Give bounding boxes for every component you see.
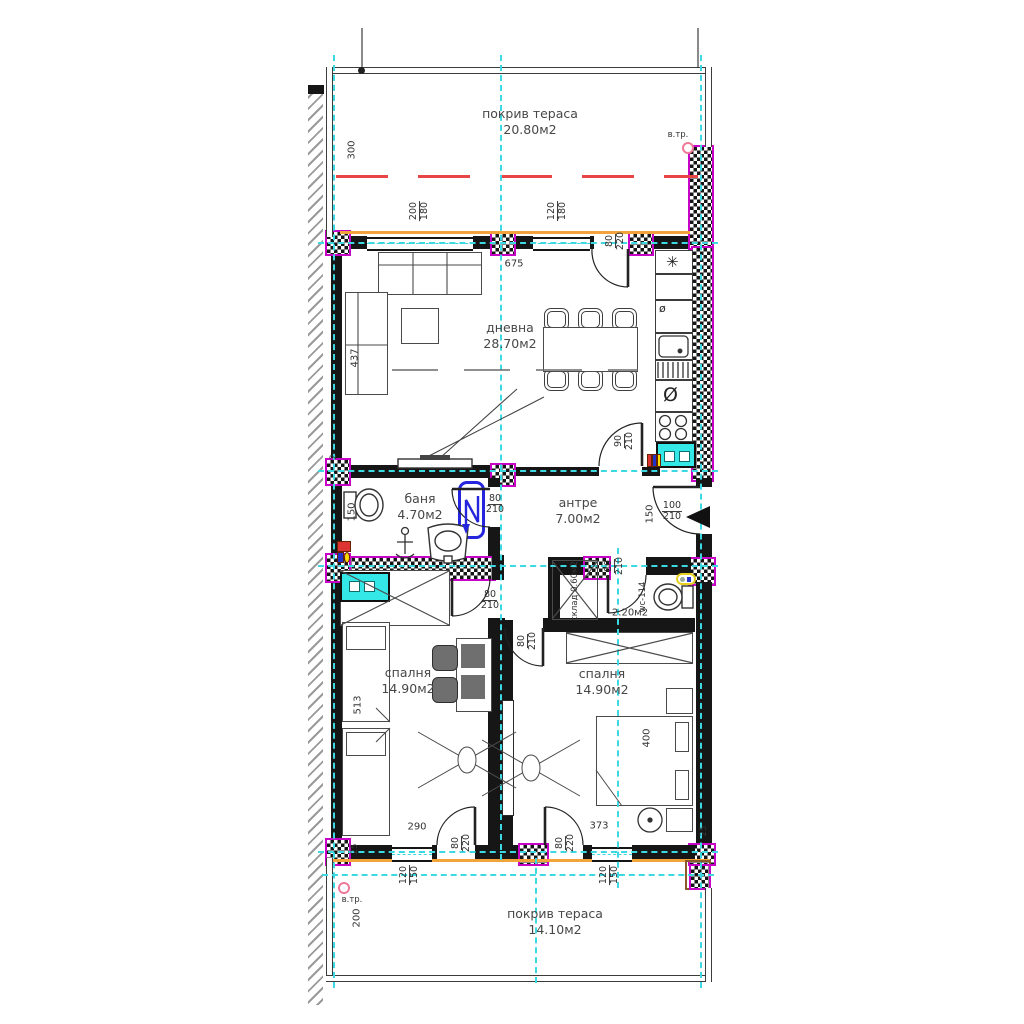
dim-parapet-right: 25 bbox=[699, 826, 709, 837]
room-label-terrace-top: покрив тераса20.80м2 bbox=[482, 106, 578, 139]
shower-mixer bbox=[396, 528, 414, 559]
dim-wall-thin: 2 bbox=[329, 454, 339, 459]
floor-lamp bbox=[638, 808, 662, 832]
tv bbox=[398, 389, 544, 468]
dim-terrace-top-depth: 300 bbox=[347, 140, 358, 159]
wardrobe-left-cross bbox=[341, 571, 449, 625]
dim-door-living-hall: 90210 bbox=[606, 432, 636, 450]
dim-door-bedroom-left: 80210 bbox=[481, 582, 499, 612]
dim-terrace-bottom-depth: 200 bbox=[352, 908, 363, 927]
dim-window-bottom-left: 120150 bbox=[391, 865, 421, 885]
drawing-overlay bbox=[0, 0, 1024, 1024]
dim-door-terrace-bl: 80220 bbox=[443, 834, 473, 852]
ceiling-lights bbox=[418, 732, 580, 796]
bath-sink bbox=[428, 524, 468, 563]
room-area-wc: 2.20м2 bbox=[612, 608, 648, 619]
dim-door-terrace-br: 80220 bbox=[547, 834, 577, 852]
wc-toilet bbox=[654, 584, 693, 610]
kitchen-sink bbox=[658, 336, 688, 378]
boiler-n-arrow bbox=[462, 496, 478, 534]
room-label-bath: баня4.70м2 bbox=[397, 491, 442, 524]
dim-window-bottom-right: 120150 bbox=[591, 865, 621, 885]
room-label-storage: склад 0.60м2 bbox=[570, 561, 580, 621]
room-label-hall: антре7.00м2 bbox=[555, 495, 600, 528]
dim-bed-left: 513 bbox=[353, 695, 364, 714]
door-arcs bbox=[437, 249, 700, 845]
door-terrace-top bbox=[592, 249, 628, 287]
dim-bed-right: 400 bbox=[642, 728, 653, 747]
room-label-bedroom-left: спалня14.90м2 bbox=[381, 665, 434, 698]
dim-door-terrace-top: 80220 bbox=[597, 232, 627, 250]
vtr-label-bottom: в.тр. bbox=[342, 895, 363, 905]
sofa-lines bbox=[345, 252, 482, 395]
bed-folds bbox=[376, 708, 622, 806]
vtr-label-top: в.тр. bbox=[668, 130, 689, 140]
dim-door-bath: 80210 bbox=[486, 486, 504, 516]
dim-sofa: 437 bbox=[350, 348, 361, 367]
dim-bath-left: 150 bbox=[347, 502, 358, 521]
dim-parapet-left: 25 bbox=[350, 844, 360, 855]
dim-living-width: 675 bbox=[504, 259, 523, 270]
dim-window-top-left: 200180 bbox=[401, 201, 431, 221]
room-label-bedroom-right: спалня14.90м2 bbox=[575, 666, 628, 699]
entrance-arrow bbox=[686, 506, 710, 528]
dim-door-entrance: 100210 bbox=[662, 493, 682, 523]
wardrobe-right-cross bbox=[566, 633, 693, 663]
dim-door-wc: 80210 bbox=[596, 557, 626, 575]
floor-plan: ✳ ø Ø bbox=[0, 0, 1024, 1024]
dim-hall-niche: 150 bbox=[645, 504, 656, 523]
dim-window-top-right: 120180 bbox=[539, 201, 569, 221]
dim-bedroom-right-width: 373 bbox=[589, 821, 608, 832]
dim-door-bedroom-right: 80210 bbox=[509, 632, 539, 650]
room-label-living: дневна28.70м2 bbox=[483, 320, 536, 353]
room-label-terrace-bottom: покрив тераса14.10м2 bbox=[507, 906, 603, 939]
dim-bedroom-left-width: 290 bbox=[407, 822, 426, 833]
kitchen-burners bbox=[660, 416, 687, 440]
